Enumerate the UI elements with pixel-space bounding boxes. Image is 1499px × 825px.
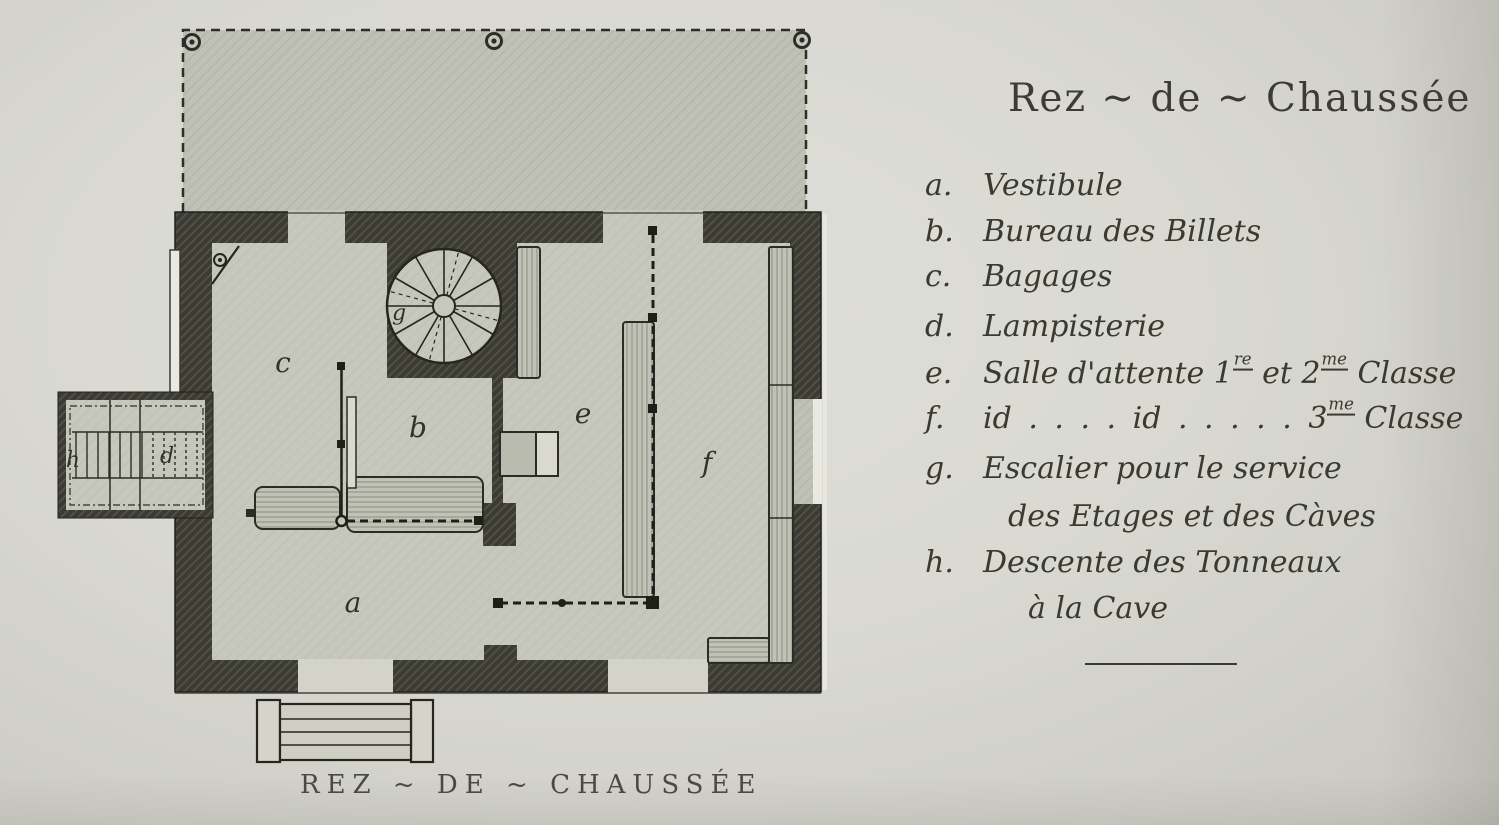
canopy-column-icon [795,33,810,48]
room-label-g: g [392,301,406,326]
room-label-e: e [575,397,592,430]
legend-letter: a. [925,168,983,203]
table [500,432,536,476]
left-annex [58,392,213,518]
legend-text: Bureau des Billets [983,214,1261,249]
legend-item-a: a.Vestibule [925,168,1123,203]
room-label-c: c [275,346,291,379]
platform-canopy [183,30,810,212]
plan-caption: REZ ~ DE ~ CHAUSSÉE [300,770,700,800]
right-door-opening [790,399,822,504]
legend-text: Escalier pour le service [983,451,1342,486]
entrance-steps [257,700,433,762]
room-label-b: b [409,411,427,444]
wall-pier [484,645,517,662]
legend-item-d: d.Lampisterie [925,309,1165,344]
bench [769,247,793,663]
legend-letter: d. [925,309,983,344]
bench [517,247,540,378]
legend-letter: e. [925,356,983,391]
legend-item-f: f.id . . . . id . . . . . 3me Classe [925,401,1463,436]
bench [347,477,483,532]
legend-text: id . . . . id . . . . . 3me Classe [983,401,1463,436]
legend-item-g: g.Escalier pour le service [925,451,1342,486]
canopy-column-icon [487,34,502,49]
ticket-counter [347,397,356,488]
bench [255,487,340,529]
bench [708,638,769,663]
legend-item-h: h.Descente des Tonneaux [925,545,1342,580]
legend-title: Rez ~ de ~ Chaussée [1008,76,1472,121]
room-label-a: a [345,586,362,619]
floor-plan-drawing: a b c d e f g h [0,0,900,825]
legend-text: Bagages [983,259,1112,294]
room-label-h: h [66,448,80,473]
legend-item-g-line2: des Etages et des Càves [1008,499,1376,534]
legend-letter: b. [925,214,983,249]
door-opening [298,659,393,694]
table [536,432,558,476]
canopy-column-icon [185,35,200,50]
legend-item-e: e.Salle d'attente 1re et 2me Classe [925,356,1456,391]
legend-item-h-line2: à la Cave [1028,591,1168,626]
wall-pier [483,503,516,546]
legend-letter: h. [925,545,983,580]
legend-item-b: b.Bureau des Billets [925,214,1261,249]
door-opening [608,659,708,694]
window-opening [170,250,180,393]
legend-text: Lampisterie [983,309,1165,344]
legend-text: Salle d'attente 1re et 2me Classe [983,356,1456,391]
legend-letter: f. [925,401,983,436]
legend-text: Vestibule [983,168,1123,203]
legend-letter: c. [925,259,983,294]
bench [623,322,654,597]
door-opening [288,210,345,244]
legend-text: des Etages et des Càves [1008,499,1376,534]
legend-divider [1085,663,1237,665]
legend-text: Descente des Tonneaux [983,545,1342,580]
building-walls [170,210,827,694]
legend-letter: g. [925,451,983,486]
legend-item-c: c.Bagages [925,259,1112,294]
legend-text: à la Cave [1028,591,1168,626]
room-label-d: d [160,444,174,469]
